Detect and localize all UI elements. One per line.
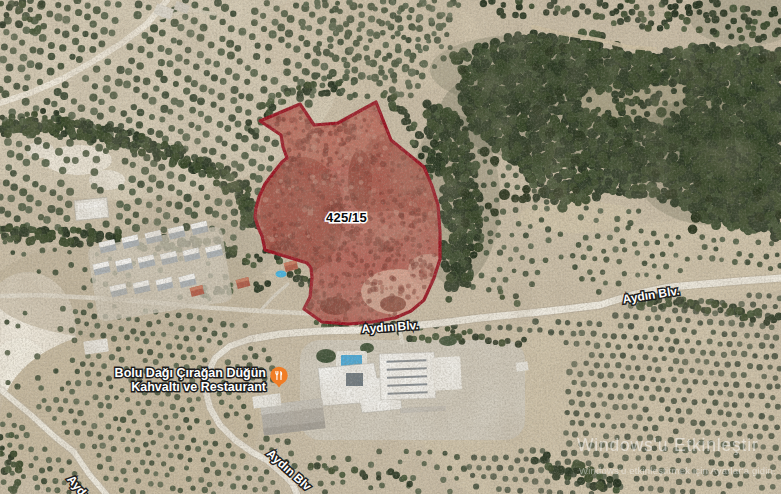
svg-text:Bolu Dağı Çırağan Düğün: Bolu Dağı Çırağan Düğün: [115, 366, 266, 380]
svg-text:Windows'u etkinleştirmek için: Windows'u etkinleştirmek için Ayarlar'a …: [579, 465, 776, 476]
svg-text:Kahvaltı ve Restaurant: Kahvaltı ve Restaurant: [131, 380, 267, 394]
svg-text:Windows'u Etkinleştir: Windows'u Etkinleştir: [577, 435, 759, 455]
svg-text:425/15: 425/15: [326, 210, 367, 225]
